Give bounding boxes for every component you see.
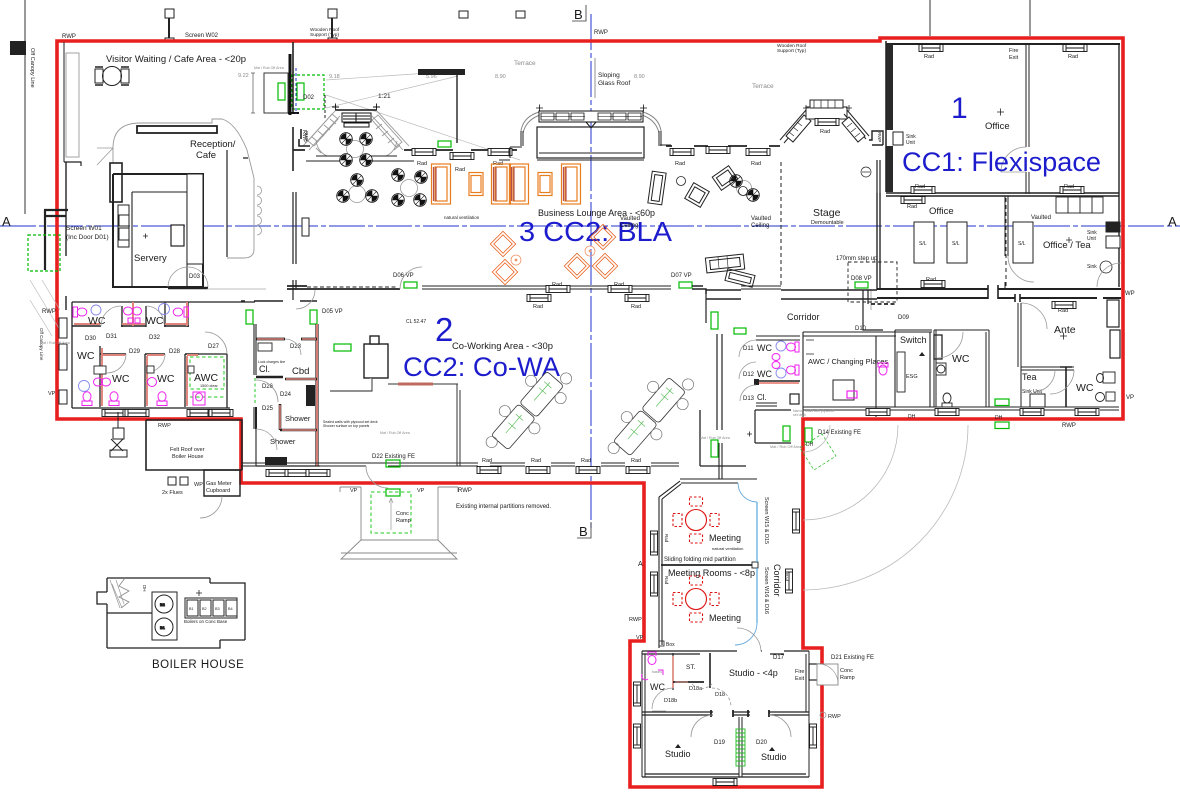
svg-text:Sloping: Sloping bbox=[598, 72, 620, 79]
svg-text:170mm step up: 170mm step up bbox=[836, 256, 878, 262]
svg-text:Rad: Rad bbox=[1064, 184, 1074, 190]
svg-text:Rad: Rad bbox=[664, 576, 669, 585]
svg-text:WC: WC bbox=[146, 315, 164, 327]
svg-text:D18: D18 bbox=[715, 692, 725, 698]
svg-text:natural ventilation: natural ventilation bbox=[444, 215, 480, 220]
svg-text:Shower: Shower bbox=[285, 414, 311, 423]
svg-text:D19: D19 bbox=[714, 740, 726, 746]
svg-text:Ante: Ante bbox=[1054, 324, 1076, 336]
svg-text:D18b: D18b bbox=[664, 698, 677, 704]
svg-text:Cafe: Cafe bbox=[196, 150, 216, 161]
svg-text:basins: basins bbox=[652, 670, 662, 674]
svg-text:Gas Meter: Gas Meter bbox=[206, 481, 232, 487]
svg-text:Vaulted: Vaulted bbox=[620, 216, 640, 222]
svg-text:Rad: Rad bbox=[915, 184, 925, 190]
svg-text:Rad: Rad bbox=[531, 458, 541, 464]
svg-text:Cbd: Cbd bbox=[292, 366, 309, 377]
svg-text:Conc: Conc bbox=[840, 668, 853, 674]
svg-text:B: B bbox=[579, 524, 588, 539]
svg-text:D02: D02 bbox=[303, 95, 315, 101]
svg-text:A: A bbox=[638, 561, 643, 568]
svg-text:CC2: Co-WA: CC2: Co-WA bbox=[403, 352, 560, 382]
svg-text:Corridor: Corridor bbox=[787, 312, 820, 322]
svg-text:VP: VP bbox=[417, 488, 425, 494]
svg-text:Meeting: Meeting bbox=[709, 613, 741, 623]
svg-text:S/L: S/L bbox=[1018, 241, 1026, 247]
svg-text:Support (Typ): Support (Typ) bbox=[310, 32, 339, 38]
svg-text:Felt Roof over: Felt Roof over bbox=[170, 447, 205, 453]
svg-text:Cupboard: Cupboard bbox=[206, 488, 230, 494]
svg-text:Stage: Stage bbox=[813, 207, 841, 219]
svg-text:CL 52.47: CL 52.47 bbox=[406, 319, 426, 325]
svg-text:D18a: D18a bbox=[689, 686, 703, 692]
svg-text:B2: B2 bbox=[160, 602, 166, 607]
svg-text:D11: D11 bbox=[743, 346, 754, 352]
svg-text:Rad: Rad bbox=[482, 458, 492, 464]
svg-text:DH: DH bbox=[806, 442, 814, 448]
svg-text:1:21: 1:21 bbox=[378, 93, 391, 100]
svg-text:D03: D03 bbox=[189, 274, 201, 280]
svg-text:DH: DH bbox=[142, 585, 147, 592]
svg-text:D13: D13 bbox=[743, 396, 755, 402]
svg-text:natural ventilation: natural ventilation bbox=[712, 546, 743, 551]
svg-text:Rad: Rad bbox=[455, 167, 465, 173]
svg-text:Mat / Rub Off Area: Mat / Rub Off Area bbox=[40, 341, 70, 345]
svg-text:B2: B2 bbox=[202, 607, 207, 611]
svg-text:D20: D20 bbox=[756, 740, 768, 746]
svg-text:WP: WP bbox=[1125, 291, 1135, 297]
svg-text:Meeting Rooms - <8p: Meeting Rooms - <8p bbox=[668, 568, 755, 578]
svg-text:Mat / Rub Off Area: Mat / Rub Off Area bbox=[700, 436, 730, 440]
svg-text:Ramp: Ramp bbox=[396, 518, 411, 524]
svg-text:RWP: RWP bbox=[42, 309, 56, 315]
svg-text:Shower surface on top panels: Shower surface on top panels bbox=[323, 424, 370, 428]
svg-text:Rad: Rad bbox=[614, 282, 624, 288]
svg-text:RWP: RWP bbox=[62, 34, 76, 40]
svg-text:RWP: RWP bbox=[828, 714, 841, 720]
svg-text:Support (Typ): Support (Typ) bbox=[777, 48, 806, 54]
svg-text:Rad: Rad bbox=[664, 534, 669, 543]
svg-text:B1: B1 bbox=[160, 625, 166, 630]
svg-text:Vaulted: Vaulted bbox=[1031, 215, 1051, 221]
svg-text:Studio - <4p: Studio - <4p bbox=[729, 668, 778, 678]
svg-text:Office: Office bbox=[929, 206, 954, 217]
svg-text:RWP: RWP bbox=[594, 30, 608, 36]
svg-text:Sink: Sink bbox=[1087, 264, 1097, 270]
svg-text:Meeting: Meeting bbox=[709, 533, 741, 543]
svg-text:Rad: Rad bbox=[631, 304, 641, 310]
svg-text:Ceiling: Ceiling bbox=[620, 223, 638, 229]
svg-text:VP: VP bbox=[1126, 395, 1134, 401]
svg-text:Rad: Rad bbox=[820, 129, 830, 135]
svg-text:DH: DH bbox=[995, 415, 1003, 421]
svg-text:D07 VP: D07 VP bbox=[671, 273, 692, 279]
svg-text:Tea: Tea bbox=[1022, 372, 1037, 382]
svg-text:RWP: RWP bbox=[304, 131, 309, 141]
svg-text:AWC / Changing Places: AWC / Changing Places bbox=[808, 357, 888, 366]
svg-text:Reception/: Reception/ bbox=[190, 139, 236, 150]
svg-text:RWP: RWP bbox=[158, 423, 171, 429]
svg-text:Office / Tea: Office / Tea bbox=[1043, 240, 1091, 251]
svg-text:Office: Office bbox=[985, 121, 1010, 132]
svg-text:A: A bbox=[2, 214, 11, 229]
svg-text:D06 VP: D06 VP bbox=[393, 273, 414, 279]
svg-text:RWP: RWP bbox=[629, 617, 642, 623]
svg-text:D05 VP: D05 VP bbox=[322, 309, 343, 315]
svg-text:Mat / Rub Off Area: Mat / Rub Off Area bbox=[380, 431, 410, 435]
svg-text:D24: D24 bbox=[280, 392, 292, 398]
svg-text:Cl.: Cl. bbox=[757, 393, 767, 402]
svg-text:DH: DH bbox=[908, 414, 916, 420]
svg-text:D27: D27 bbox=[208, 344, 220, 350]
svg-text:Boilers on Conc Base: Boilers on Conc Base bbox=[184, 619, 228, 624]
svg-text:Demountable: Demountable bbox=[811, 220, 844, 226]
svg-text:Terrace: Terrace bbox=[514, 60, 536, 67]
svg-text:8.90: 8.90 bbox=[634, 74, 645, 80]
svg-text:VP: VP bbox=[350, 488, 358, 494]
svg-text:D08 VP: D08 VP bbox=[851, 276, 872, 282]
svg-text:D17: D17 bbox=[773, 655, 785, 661]
svg-text:D28: D28 bbox=[169, 349, 181, 355]
svg-text:BOILER HOUSE: BOILER HOUSE bbox=[152, 659, 244, 671]
svg-text:Rad: Rad bbox=[417, 161, 427, 167]
svg-text:VP: VP bbox=[636, 635, 644, 641]
svg-text:(Inc Door D01): (Inc Door D01) bbox=[66, 234, 109, 241]
svg-text:Glass Roof: Glass Roof bbox=[598, 80, 630, 87]
svg-text:D14 Existing FE: D14 Existing FE bbox=[818, 430, 861, 436]
svg-text:Rad: Rad bbox=[926, 277, 936, 283]
svg-text:Vaulted: Vaulted bbox=[751, 216, 771, 222]
svg-text:Ceiling: Ceiling bbox=[751, 223, 769, 229]
svg-text:WP: WP bbox=[194, 482, 203, 488]
svg-text:Boiler House: Boiler House bbox=[172, 454, 204, 460]
svg-text:Mat / Rub Off Area: Mat / Rub Off Area bbox=[254, 66, 284, 70]
svg-text:WC: WC bbox=[157, 373, 175, 385]
svg-text:2: 2 bbox=[435, 311, 453, 348]
svg-text:S/L: S/L bbox=[919, 241, 927, 247]
svg-text:Sliding folding mid partition: Sliding folding mid partition bbox=[664, 557, 736, 563]
svg-text:WC: WC bbox=[112, 373, 130, 385]
svg-text:RWP: RWP bbox=[877, 132, 882, 142]
svg-text:WC: WC bbox=[77, 350, 95, 362]
svg-text:VP: VP bbox=[48, 391, 56, 397]
svg-text:1500 clear: 1500 clear bbox=[200, 384, 218, 388]
svg-text:B: B bbox=[574, 7, 583, 22]
svg-text:Unit: Unit bbox=[906, 140, 916, 146]
svg-text:B4: B4 bbox=[228, 607, 233, 611]
svg-text:Servery: Servery bbox=[134, 253, 167, 264]
svg-text:Rad: Rad bbox=[675, 161, 685, 167]
svg-text:D10: D10 bbox=[855, 326, 867, 332]
svg-text:1: 1 bbox=[951, 92, 968, 125]
svg-text:D22 Existing FE: D22 Existing FE bbox=[372, 454, 415, 460]
svg-text:Rad: Rad bbox=[631, 458, 641, 464]
svg-text:Rad: Rad bbox=[581, 458, 591, 464]
svg-text:Rad: Rad bbox=[924, 54, 934, 60]
svg-text:9.22: 9.22 bbox=[238, 73, 249, 79]
svg-text:Terrace: Terrace bbox=[752, 83, 774, 90]
svg-text:RWP: RWP bbox=[458, 488, 472, 494]
svg-text:CC1: Flexispace: CC1: Flexispace bbox=[902, 147, 1101, 177]
svg-text:WC: WC bbox=[757, 343, 772, 353]
svg-text:set deck: set deck bbox=[793, 413, 806, 417]
svg-text:Box: Box bbox=[666, 642, 675, 648]
svg-text:Studio: Studio bbox=[665, 749, 691, 759]
svg-text:Switch: Switch bbox=[900, 335, 927, 345]
svg-text:Rad: Rad bbox=[1068, 54, 1078, 60]
svg-text:Ramp: Ramp bbox=[840, 675, 855, 681]
svg-text:Off Canopy Line: Off Canopy Line bbox=[29, 48, 35, 88]
svg-text:Co-Working Area - <30p: Co-Working Area - <30p bbox=[452, 341, 553, 351]
svg-text:Mat / Rub Off Area: Mat / Rub Off Area bbox=[770, 445, 802, 449]
svg-text:D32: D32 bbox=[149, 335, 161, 341]
svg-text:WC: WC bbox=[757, 369, 772, 379]
svg-text:Screen W02: Screen W02 bbox=[185, 33, 219, 39]
svg-text:Fire: Fire bbox=[795, 669, 804, 675]
svg-text:B3: B3 bbox=[215, 607, 220, 611]
svg-text:8.90: 8.90 bbox=[495, 74, 506, 80]
svg-text:Existing internal partitions r: Existing internal partitions removed. bbox=[456, 504, 551, 510]
svg-text:AWC: AWC bbox=[194, 372, 219, 384]
svg-text:Conc: Conc bbox=[396, 511, 409, 517]
svg-text:Screen W15 & D15: Screen W15 & D15 bbox=[763, 497, 769, 544]
svg-text:2x Flues: 2x Flues bbox=[162, 490, 183, 496]
svg-text:A: A bbox=[1168, 214, 1177, 229]
svg-text:ESG: ESG bbox=[906, 374, 918, 380]
svg-text:Rad: Rad bbox=[751, 161, 761, 167]
svg-text:B1: B1 bbox=[189, 607, 194, 611]
svg-text:D29: D29 bbox=[129, 349, 141, 355]
svg-text:Lock charges line: Lock charges line bbox=[258, 360, 285, 364]
svg-text:Screen W16 & D16: Screen W16 & D16 bbox=[763, 567, 769, 614]
svg-text:D12: D12 bbox=[743, 372, 755, 378]
svg-text:Fire: Fire bbox=[1009, 48, 1018, 54]
svg-text:Rad: Rad bbox=[907, 204, 917, 210]
svg-text:Cl.: Cl. bbox=[259, 364, 270, 374]
svg-text:Rad: Rad bbox=[1058, 308, 1068, 314]
svg-text:D30: D30 bbox=[85, 336, 97, 342]
svg-text:S/L: S/L bbox=[952, 241, 960, 247]
svg-text:ST.: ST. bbox=[686, 664, 696, 671]
svg-text:WC: WC bbox=[1076, 382, 1094, 394]
svg-text:Rad: Rad bbox=[552, 282, 562, 288]
svg-text:Screen W01: Screen W01 bbox=[66, 225, 102, 232]
svg-text:Exit: Exit bbox=[795, 676, 805, 682]
svg-text:Rad: Rad bbox=[784, 573, 789, 582]
svg-text:D25: D25 bbox=[262, 406, 274, 412]
svg-text:WC: WC bbox=[952, 353, 970, 365]
svg-text:RWP: RWP bbox=[1062, 423, 1076, 429]
svg-text:Unit: Unit bbox=[1087, 236, 1097, 242]
svg-text:D31: D31 bbox=[106, 334, 118, 340]
svg-text:Exit: Exit bbox=[1009, 55, 1019, 61]
svg-text:Studio: Studio bbox=[761, 752, 787, 762]
svg-text:D21 Existing FE: D21 Existing FE bbox=[831, 655, 874, 661]
svg-text:Rad: Rad bbox=[533, 304, 543, 310]
svg-text:Visitor Waiting / Cafe Area -: Visitor Waiting / Cafe Area - <20p bbox=[106, 54, 246, 65]
svg-text:D09: D09 bbox=[898, 315, 910, 321]
svg-text:Corridor: Corridor bbox=[772, 564, 782, 597]
